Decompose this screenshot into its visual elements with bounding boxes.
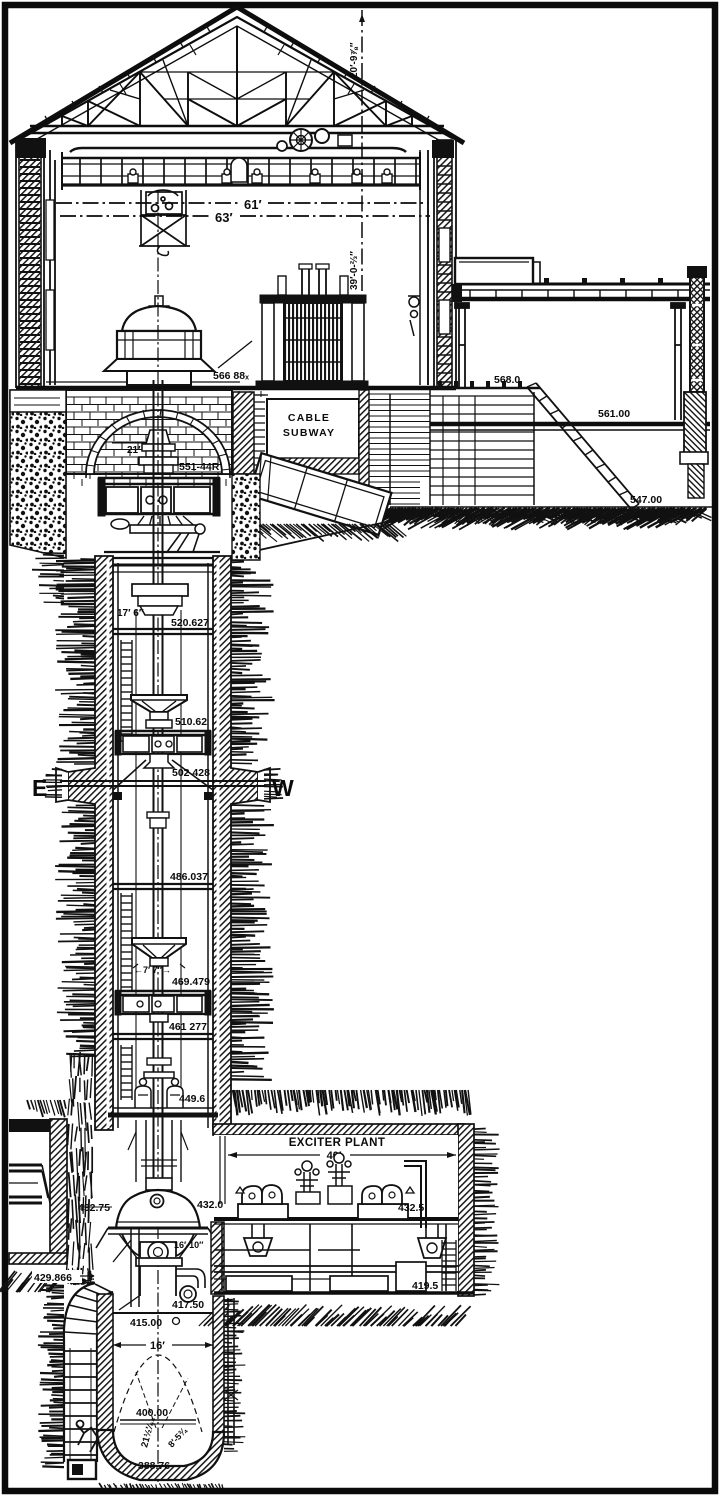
svg-text:63′: 63′ bbox=[215, 210, 233, 225]
svg-text:449.6: 449.6 bbox=[179, 1093, 205, 1105]
svg-text:61′: 61′ bbox=[244, 197, 262, 212]
svg-text:561.00: 561.00 bbox=[598, 408, 630, 420]
svg-text:17′ 6″: 17′ 6″ bbox=[117, 608, 144, 619]
svg-text:388.76: 388.76 bbox=[138, 1460, 170, 1472]
svg-text:510.62: 510.62 bbox=[175, 716, 207, 728]
svg-text:419.5: 419.5 bbox=[412, 1280, 438, 1292]
svg-text:SUBWAY: SUBWAY bbox=[283, 427, 335, 439]
svg-text:E: E bbox=[32, 775, 47, 801]
svg-text:415.00: 415.00 bbox=[130, 1317, 162, 1329]
svg-text:400.00: 400.00 bbox=[136, 1407, 168, 1419]
svg-text:417.50: 417.50 bbox=[172, 1299, 204, 1311]
svg-text:429.866: 429.866 bbox=[34, 1272, 72, 1284]
svg-text:568.0: 568.0 bbox=[494, 374, 520, 386]
svg-text:461 277: 461 277 bbox=[169, 1021, 207, 1033]
svg-text:W: W bbox=[272, 775, 294, 801]
svg-text:486.037: 486.037 bbox=[170, 871, 208, 883]
svg-text:502 428: 502 428 bbox=[172, 767, 210, 779]
svg-text:566 88ₓ: 566 88ₓ bbox=[213, 370, 249, 382]
svg-text:21′: 21′ bbox=[127, 445, 141, 456]
svg-text:432.5: 432.5 bbox=[398, 1202, 424, 1214]
svg-text:20′-9⅞″: 20′-9⅞″ bbox=[349, 42, 360, 78]
svg-text:547.00: 547.00 bbox=[630, 494, 662, 506]
svg-text:16′: 16′ bbox=[150, 1340, 165, 1352]
svg-text:EXCITER PLANT: EXCITER PLANT bbox=[289, 1137, 386, 1149]
svg-text:CABLE: CABLE bbox=[288, 412, 330, 424]
svg-text:469.479: 469.479 bbox=[172, 976, 210, 988]
svg-text:16′-10″: 16′-10″ bbox=[174, 1240, 204, 1250]
svg-text:←7′ 7″→: ←7′ 7″→ bbox=[134, 965, 171, 975]
svg-text:39′-0-⅔″: 39′-0-⅔″ bbox=[349, 251, 360, 290]
svg-text:551-44R: 551-44R bbox=[179, 461, 220, 473]
svg-text:520.627: 520.627 bbox=[171, 617, 209, 629]
